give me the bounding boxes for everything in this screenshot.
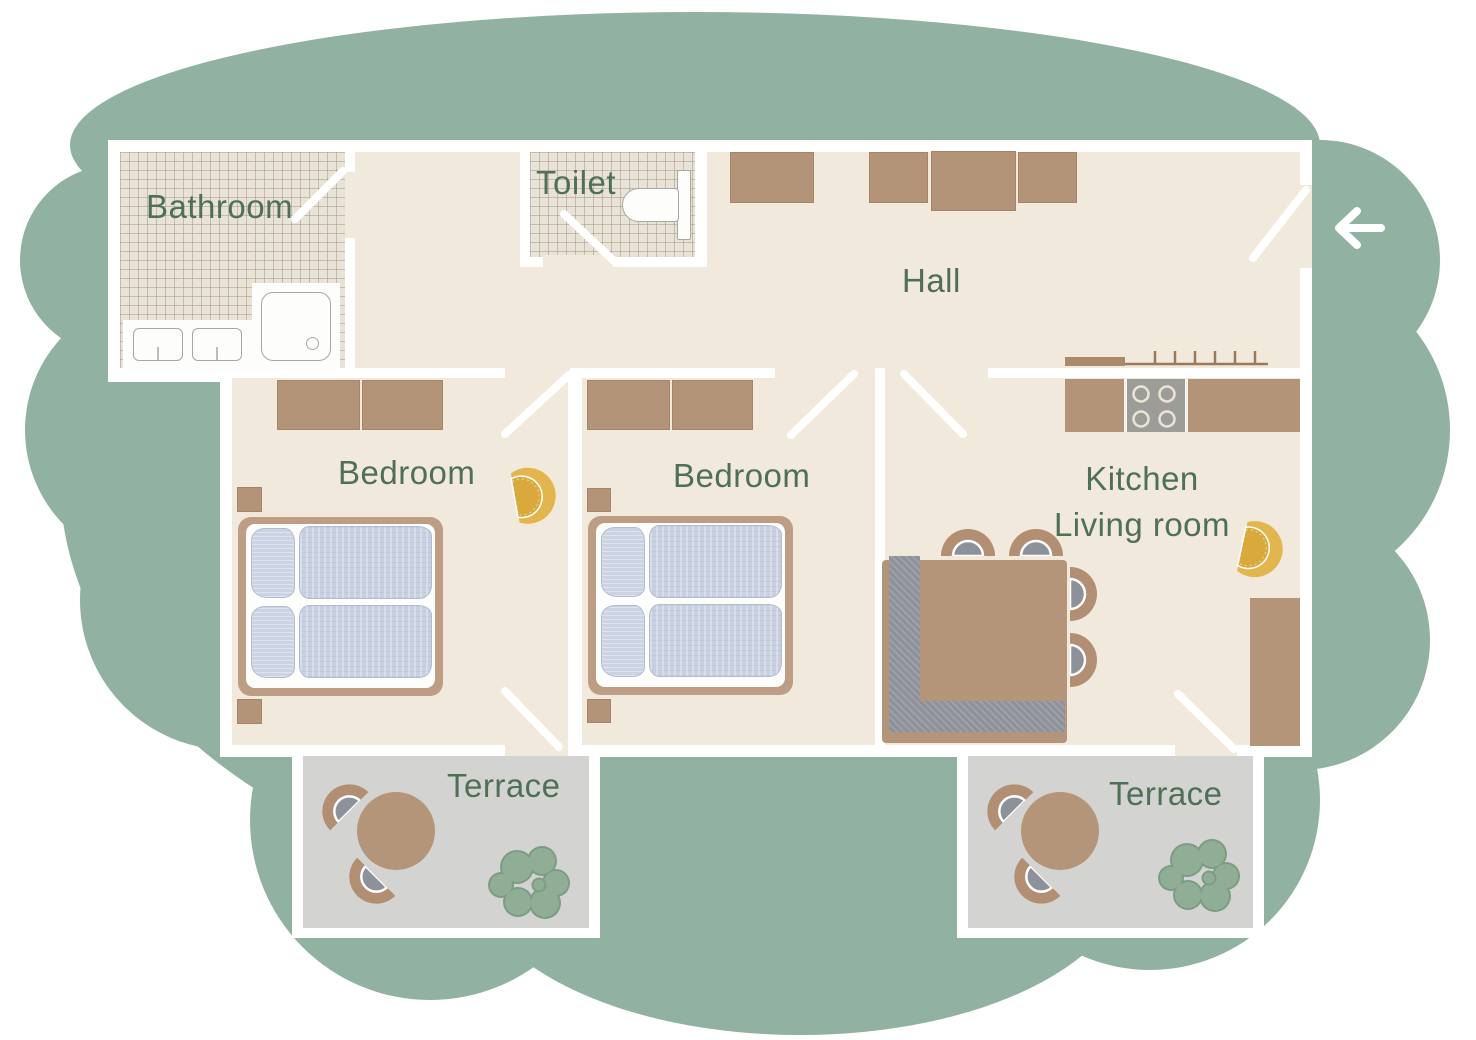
wardrobe: [587, 380, 670, 430]
wardrobe: [362, 380, 443, 430]
sideboard: [1250, 598, 1300, 746]
pillow: [601, 605, 645, 677]
hall-floor: [355, 152, 1300, 368]
hall-cabinet: [1018, 152, 1077, 203]
nightstand: [587, 488, 611, 512]
kitchen-label-line2: Living room: [997, 502, 1287, 548]
pillow: [251, 528, 295, 598]
kitchen-living-label: Kitchen Living room: [997, 456, 1287, 547]
bedroom-left-door-opening: [505, 368, 570, 378]
sink-icon: [192, 328, 242, 361]
hall-cabinet: [730, 152, 814, 203]
chair-icon: [940, 524, 996, 556]
duvet: [649, 604, 782, 677]
shower-drain: [306, 337, 319, 350]
ceiling-lamp-icon: [501, 460, 563, 530]
chair-icon: [1070, 632, 1102, 688]
counter-divider: [1124, 379, 1127, 432]
bathroom-door-opening: [345, 172, 355, 238]
floor-plan-illustration: Bathroom Toilet Hall Bedroom Bedroom Kit…: [0, 0, 1476, 1040]
chair-icon: [1070, 566, 1102, 622]
counter-divider: [1185, 379, 1188, 432]
dining-table: [933, 563, 1064, 693]
corner-sofa: [889, 701, 1065, 732]
terrace-left-label: Terrace: [447, 769, 561, 802]
wardrobe: [672, 380, 753, 430]
entrance-door-opening: [1300, 185, 1312, 268]
arrow-left-icon: [1339, 211, 1381, 245]
bedroom-left-label: Bedroom: [338, 456, 475, 489]
hall-label: Hall: [902, 264, 961, 297]
round-table: [1021, 792, 1099, 870]
nightstand: [587, 699, 611, 723]
duvet: [299, 605, 432, 678]
kitchen-door-opening: [885, 368, 988, 378]
sink-icon: [133, 328, 183, 361]
nightstand: [237, 699, 262, 724]
toilet-door-opening: [543, 255, 613, 267]
shower-icon: [261, 292, 331, 361]
stove-icon: [1127, 379, 1185, 432]
bathroom-label: Bathroom: [146, 190, 293, 223]
pillow: [251, 606, 295, 678]
round-table: [357, 792, 435, 870]
bedroom-middle-door-opening: [775, 368, 875, 378]
wardrobe: [277, 380, 360, 430]
duvet: [299, 526, 432, 599]
terrace-right-label: Terrace: [1109, 777, 1223, 810]
duvet: [649, 525, 782, 598]
hall-cabinet: [869, 152, 928, 203]
kitchen-label-line1: Kitchen: [997, 456, 1287, 502]
toilet-label: Toilet: [536, 166, 616, 199]
plant-icon: [1157, 836, 1243, 914]
hall-cabinet: [931, 151, 1016, 211]
pillow: [601, 527, 645, 597]
toilet-bowl-icon: [622, 188, 679, 222]
bedroom-middle-label: Bedroom: [673, 459, 810, 492]
plant-icon: [487, 843, 573, 921]
nightstand: [237, 487, 262, 512]
terrace-left-door-opening: [505, 745, 568, 756]
toilet-tank: [677, 170, 691, 240]
terrace-right-door-opening: [1175, 745, 1237, 756]
